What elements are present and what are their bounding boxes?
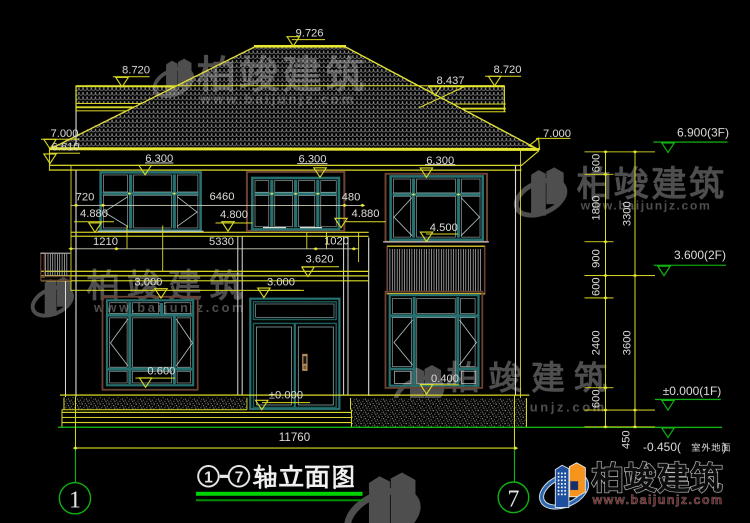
svg-text:www.baijunjz.com: www.baijunjz.com bbox=[199, 92, 355, 107]
svg-text:6460: 6460 bbox=[210, 191, 235, 203]
svg-text:0.600: 0.600 bbox=[147, 365, 175, 377]
svg-text:±0.000: ±0.000 bbox=[269, 390, 303, 402]
svg-text:-0.450(: -0.450( bbox=[643, 440, 681, 454]
svg-text:1: 1 bbox=[69, 487, 81, 513]
svg-text:3300: 3300 bbox=[621, 201, 633, 226]
svg-text:4.500: 4.500 bbox=[430, 222, 458, 234]
svg-text:11760: 11760 bbox=[279, 431, 310, 444]
svg-text:9.726: 9.726 bbox=[296, 28, 324, 40]
svg-text:0.400: 0.400 bbox=[431, 373, 459, 385]
svg-text:3.600(2F): 3.600(2F) bbox=[674, 248, 726, 262]
svg-text:3600: 3600 bbox=[621, 330, 633, 355]
svg-text:900: 900 bbox=[591, 249, 603, 268]
svg-text:3.000: 3.000 bbox=[267, 276, 295, 288]
svg-text:2400: 2400 bbox=[591, 330, 603, 355]
svg-text:8.720: 8.720 bbox=[122, 64, 150, 76]
svg-text:www.baijunjz.com: www.baijunjz.com bbox=[591, 493, 723, 507]
svg-text:): ) bbox=[722, 440, 726, 454]
svg-text:6.610: 6.610 bbox=[52, 141, 80, 153]
svg-text:4.880: 4.880 bbox=[352, 208, 380, 220]
svg-text:4.800: 4.800 bbox=[220, 209, 248, 221]
svg-text:8.437: 8.437 bbox=[437, 75, 465, 87]
svg-text:3.620: 3.620 bbox=[305, 254, 333, 266]
svg-text:1020: 1020 bbox=[324, 236, 349, 248]
svg-text:4.880: 4.880 bbox=[80, 208, 108, 220]
svg-text:8.720: 8.720 bbox=[494, 64, 522, 76]
svg-text:720: 720 bbox=[76, 191, 95, 203]
svg-text:600: 600 bbox=[591, 277, 603, 296]
svg-text:±0.000(1F): ±0.000(1F) bbox=[663, 384, 722, 398]
svg-text:450: 450 bbox=[620, 430, 632, 449]
svg-text:5330: 5330 bbox=[209, 236, 234, 248]
svg-text:1800: 1800 bbox=[591, 196, 603, 221]
svg-text:6.900(3F): 6.900(3F) bbox=[677, 125, 729, 139]
svg-text:1: 1 bbox=[204, 469, 213, 486]
svg-text:3.000: 3.000 bbox=[134, 276, 162, 288]
svg-text:480: 480 bbox=[342, 191, 361, 203]
svg-text:7: 7 bbox=[507, 486, 519, 512]
svg-text:600: 600 bbox=[591, 154, 603, 173]
svg-text:7.000: 7.000 bbox=[51, 128, 79, 140]
svg-text:7: 7 bbox=[235, 469, 244, 486]
svg-text:600: 600 bbox=[591, 390, 603, 409]
svg-text:1210: 1210 bbox=[93, 236, 118, 248]
svg-text:www.baijunjz.com: www.baijunjz.com bbox=[93, 300, 246, 315]
